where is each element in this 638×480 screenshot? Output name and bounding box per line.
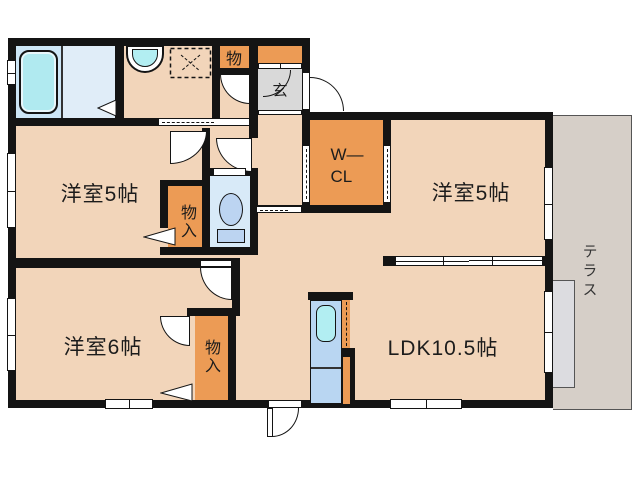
wall-top-left-block (8, 38, 310, 46)
window-bedroom-bl-bottom (105, 399, 153, 409)
sliding-line (469, 260, 542, 261)
toilet-tank (217, 229, 245, 243)
window-tick (426, 400, 427, 408)
wall-wcl-right-stub-top (383, 119, 391, 145)
sliding-door-hall-ldk (256, 206, 302, 213)
kitchen-panel-dash (346, 302, 347, 346)
entrance-step-strip (258, 110, 302, 115)
sliding-dash (260, 210, 288, 211)
door-leaf-bedroom-bl (200, 260, 232, 267)
window-tick (129, 400, 130, 408)
wall-storage-tl-left (160, 180, 168, 228)
window-tick (545, 332, 552, 333)
label-wcl-line2: CL (330, 166, 363, 188)
door-triangle-storage-bl (160, 383, 193, 403)
label-storage-hall: 物 (226, 45, 242, 69)
window-tick (8, 73, 15, 74)
kitchen-unit (310, 300, 342, 404)
kitchen-col-orange (343, 357, 350, 404)
back-door-arc (272, 408, 299, 437)
label-bedroom-top-right: 洋室5帖 (432, 177, 511, 207)
sliding-line (396, 261, 469, 262)
kitchen-divider-line (311, 367, 341, 369)
sliding-door-wcl-right (383, 145, 391, 203)
window-bedroom-tr-right (544, 167, 553, 240)
window-bedroom-tl-left (7, 153, 16, 228)
wall-storage-entrance (249, 38, 258, 138)
door-triangle-washer (97, 99, 117, 118)
window-ldk-bottom (390, 399, 462, 409)
label-terrace: テラス (579, 244, 600, 301)
sliding-dash (162, 122, 214, 123)
window-tick (545, 204, 552, 205)
wall-wcl-left-stub-top (302, 119, 310, 145)
back-door-opening (268, 400, 302, 408)
bathtub (19, 50, 58, 114)
label-entrance: 玄 (272, 80, 287, 101)
sliding-tick (492, 257, 493, 265)
label-wcl-line1: W— (330, 144, 363, 166)
kitchen-sink (316, 305, 336, 342)
door-triangle-storage-tl (143, 227, 176, 247)
floor-plan: 洋室5帖 洋室5帖 洋室6帖 LDK10.5帖 W— CL 物 玄 物入 物入 … (0, 0, 638, 480)
sliding-door-washroom (158, 118, 250, 126)
wall-tr-ldk-left-stub (383, 256, 395, 266)
front-door-arc (310, 77, 344, 111)
door-leaf-toilet (213, 168, 246, 176)
sliding-door-bedroom-tr-ldk (395, 256, 543, 266)
label-bedroom-top-left: 洋室5帖 (61, 178, 140, 208)
cabinet-tick (280, 64, 281, 68)
wall-washroom-right (212, 42, 220, 122)
front-door-opening (302, 72, 310, 110)
label-ldk: LDK10.5帖 (388, 332, 499, 362)
window-bedroom-bl-left (7, 298, 16, 371)
wall-tr-ldk-right-stub (543, 256, 553, 266)
wall-tl-bl-divider (8, 258, 198, 268)
sliding-tick (443, 257, 444, 265)
wall-kitchen-col-right (350, 357, 355, 404)
bath-washer-divider (61, 45, 63, 120)
sliding-dash (387, 149, 388, 199)
wall-storage-bl-right (228, 308, 236, 400)
washing-machine-pan (169, 47, 212, 79)
wall-toilet-storage-bottom (160, 247, 258, 255)
sliding-dash (306, 149, 307, 199)
wall-toilet-left (202, 172, 210, 255)
kitchen-side-panel (342, 300, 350, 348)
window-ldk-terrace-door (544, 291, 553, 373)
window-bath-left (7, 60, 16, 85)
wall-kitchen-counter-top (308, 292, 353, 300)
label-storage-tl: 物入 (174, 204, 198, 240)
washbasin-bowl (132, 49, 158, 67)
wall-top-right-block (302, 112, 553, 120)
window-tick (8, 191, 15, 192)
label-walk-in-closet: W— CL (330, 144, 363, 188)
label-bedroom-bottom-left: 洋室6帖 (64, 331, 143, 361)
sliding-door-wcl-left (302, 145, 310, 203)
window-tick (8, 335, 15, 336)
terrace-step (553, 280, 575, 388)
label-storage-bl: 物入 (198, 339, 222, 375)
toilet-bowl (219, 193, 243, 226)
shoe-cabinet (258, 45, 302, 63)
